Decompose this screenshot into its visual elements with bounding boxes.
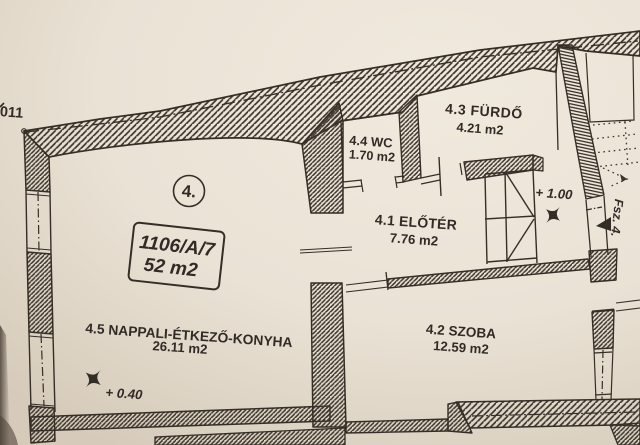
svg-text:4.: 4. — [181, 182, 196, 202]
svg-text:+ 1.00: + 1.00 — [535, 185, 574, 203]
svg-text:011: 011 — [0, 104, 24, 122]
svg-text:+ 0.40: + 0.40 — [105, 385, 144, 403]
